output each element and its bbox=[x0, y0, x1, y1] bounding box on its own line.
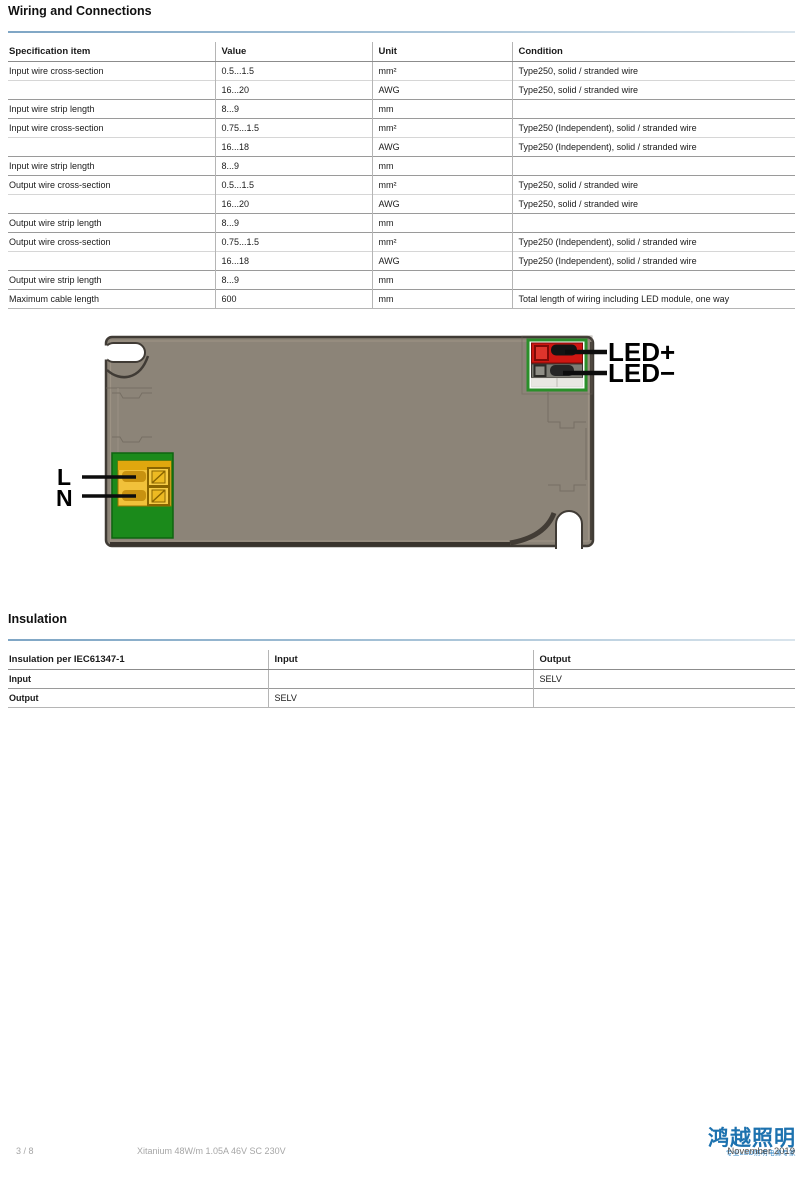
cell-condition bbox=[512, 270, 795, 289]
cell-condition: Type250, solid / stranded wire bbox=[512, 61, 795, 80]
cell-value: 16...18 bbox=[215, 251, 372, 270]
cell-specification-item: Input wire strip length bbox=[8, 156, 215, 175]
cell-value: 0.75...1.5 bbox=[215, 118, 372, 137]
datasheet-page: Wiring and Connections Specification ite… bbox=[0, 0, 800, 1177]
wiring-table-header-row: Specification item Value Unit Condition bbox=[8, 42, 795, 61]
cell-condition: Type250, solid / stranded wire bbox=[512, 194, 795, 213]
cell-value: 8...9 bbox=[215, 213, 372, 232]
cell-specification-item bbox=[8, 80, 215, 99]
cell-input: SELV bbox=[268, 688, 533, 707]
cell-unit: mm bbox=[372, 99, 512, 118]
cell-insulation-item: Input bbox=[8, 669, 268, 688]
cell-specification-item: Input wire cross-section bbox=[8, 118, 215, 137]
table-row: 16...18 AWG Type250 (Independent), solid… bbox=[8, 137, 795, 156]
table-row: Output wire cross-section 0.75...1.5 mm²… bbox=[8, 232, 795, 251]
cell-unit: mm² bbox=[372, 232, 512, 251]
cell-value: 600 bbox=[215, 289, 372, 308]
cell-unit: mm bbox=[372, 156, 512, 175]
footer-date: November 2019 bbox=[727, 1146, 795, 1157]
insulation-table-body: Input SELV Output SELV bbox=[8, 669, 795, 707]
table-row: 16...20 AWG Type250, solid / stranded wi… bbox=[8, 80, 795, 99]
column-header-output: Output bbox=[533, 650, 795, 669]
table-row: Maximum cable length 600 mm Total length… bbox=[8, 289, 795, 308]
led-output-terminal bbox=[528, 340, 586, 390]
cell-condition bbox=[512, 213, 795, 232]
cell-specification-item: Input wire strip length bbox=[8, 99, 215, 118]
cell-input bbox=[268, 669, 533, 688]
led-minus-label: LED− bbox=[608, 358, 675, 388]
cell-condition bbox=[512, 156, 795, 175]
cell-condition: Type250, solid / stranded wire bbox=[512, 175, 795, 194]
column-header-unit: Unit bbox=[372, 42, 512, 61]
table-row: Input wire strip length 8...9 mm bbox=[8, 156, 795, 175]
cell-output: SELV bbox=[533, 669, 795, 688]
cell-unit: mm bbox=[372, 289, 512, 308]
cell-insulation-item: Output bbox=[8, 688, 268, 707]
cell-value: 8...9 bbox=[215, 270, 372, 289]
led-driver-diagram: L N LED+ LED− bbox=[40, 330, 680, 570]
cell-value: 16...18 bbox=[215, 137, 372, 156]
section-rule bbox=[8, 31, 795, 33]
table-row: Input wire cross-section 0.5...1.5 mm² T… bbox=[8, 61, 795, 80]
wiring-table-body: Input wire cross-section 0.5...1.5 mm² T… bbox=[8, 61, 795, 308]
table-row: 16...18 AWG Type250 (Independent), solid… bbox=[8, 251, 795, 270]
wiring-section-title: Wiring and Connections bbox=[8, 4, 795, 18]
cell-condition: Type250 (Independent), solid / stranded … bbox=[512, 251, 795, 270]
column-header-condition: Condition bbox=[512, 42, 795, 61]
column-header-input: Input bbox=[268, 650, 533, 669]
neutral-wire-label: N bbox=[56, 485, 73, 511]
cell-unit: AWG bbox=[372, 80, 512, 99]
cell-specification-item: Output wire cross-section bbox=[8, 232, 215, 251]
cell-unit: AWG bbox=[372, 251, 512, 270]
insulation-section-title: Insulation bbox=[8, 612, 795, 626]
terminal-screw-icon bbox=[148, 487, 169, 505]
table-row: Input wire cross-section 0.75...1.5 mm² … bbox=[8, 118, 795, 137]
cell-specification-item bbox=[8, 137, 215, 156]
insulation-section: Insulation Insulation per IEC61347-1 Inp… bbox=[8, 612, 795, 708]
wiring-section: Wiring and Connections Specification ite… bbox=[8, 4, 795, 309]
cell-specification-item: Output wire strip length bbox=[8, 213, 215, 232]
column-header-specification-item: Specification item bbox=[8, 42, 215, 61]
driver-wiring-figure: L N LED+ LED− bbox=[40, 330, 680, 570]
cell-unit: mm² bbox=[372, 61, 512, 80]
cell-condition: Total length of wiring including LED mod… bbox=[512, 289, 795, 308]
driver-body bbox=[106, 337, 593, 546]
cell-value: 16...20 bbox=[215, 194, 372, 213]
cell-condition: Type250 (Independent), solid / stranded … bbox=[512, 118, 795, 137]
cell-unit: AWG bbox=[372, 137, 512, 156]
table-row: Output SELV bbox=[8, 688, 795, 707]
insulation-table-header-row: Insulation per IEC61347-1 Input Output bbox=[8, 650, 795, 669]
table-row: Input wire strip length 8...9 mm bbox=[8, 99, 795, 118]
cell-condition: Type250 (Independent), solid / stranded … bbox=[512, 137, 795, 156]
cell-unit: AWG bbox=[372, 194, 512, 213]
cell-unit: mm² bbox=[372, 175, 512, 194]
wiring-table: Specification item Value Unit Condition … bbox=[8, 42, 795, 309]
cell-value: 0.5...1.5 bbox=[215, 175, 372, 194]
table-row: Output wire strip length 8...9 mm bbox=[8, 270, 795, 289]
cell-value: 8...9 bbox=[215, 156, 372, 175]
cell-value: 0.5...1.5 bbox=[215, 61, 372, 80]
cell-value: 8...9 bbox=[215, 99, 372, 118]
product-name: Xitanium 48W/m 1.05A 46V SC 230V bbox=[137, 1146, 286, 1156]
table-row: 16...20 AWG Type250, solid / stranded wi… bbox=[8, 194, 795, 213]
table-row: Output wire cross-section 0.5...1.5 mm² … bbox=[8, 175, 795, 194]
table-row: Output wire strip length 8...9 mm bbox=[8, 213, 795, 232]
cell-unit: mm bbox=[372, 270, 512, 289]
cell-condition: Type250, solid / stranded wire bbox=[512, 80, 795, 99]
cell-unit: mm² bbox=[372, 118, 512, 137]
cell-value: 16...20 bbox=[215, 80, 372, 99]
cell-unit: mm bbox=[372, 213, 512, 232]
cell-value: 0.75...1.5 bbox=[215, 232, 372, 251]
cell-specification-item: Output wire cross-section bbox=[8, 175, 215, 194]
page-number: 3 / 8 bbox=[16, 1146, 34, 1156]
cell-output bbox=[533, 688, 795, 707]
cell-condition: Type250 (Independent), solid / stranded … bbox=[512, 232, 795, 251]
insulation-table: Insulation per IEC61347-1 Input Output I… bbox=[8, 650, 795, 708]
column-header-value: Value bbox=[215, 42, 372, 61]
table-row: Input SELV bbox=[8, 669, 795, 688]
cell-specification-item: Input wire cross-section bbox=[8, 61, 215, 80]
terminal-screw-icon bbox=[148, 468, 169, 486]
cell-specification-item: Maximum cable length bbox=[8, 289, 215, 308]
cell-condition bbox=[512, 99, 795, 118]
cell-specification-item bbox=[8, 251, 215, 270]
cell-specification-item bbox=[8, 194, 215, 213]
column-header-insulation: Insulation per IEC61347-1 bbox=[8, 650, 268, 669]
section-rule bbox=[8, 639, 795, 641]
cell-specification-item: Output wire strip length bbox=[8, 270, 215, 289]
